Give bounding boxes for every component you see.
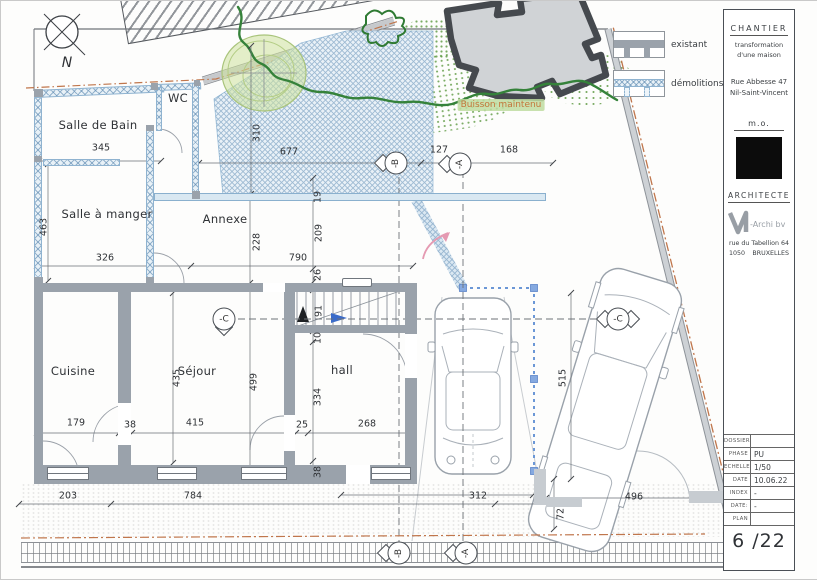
dimension-label: 499 (249, 373, 260, 391)
dimension-label: 10 (313, 332, 324, 344)
legend-label: existant (671, 40, 707, 50)
chantier-heading: CHANTIER (730, 24, 788, 36)
demolition-wall-swatch (613, 70, 665, 97)
wall-post (34, 156, 42, 162)
dimension-label: 38 (313, 466, 324, 478)
demolished-wall-trace (154, 193, 546, 201)
section-marker-c-right: -C (607, 308, 630, 331)
mo-heading: m.o. (734, 119, 784, 131)
dimension-label: 203 (59, 491, 77, 502)
titleblock-fields: DOSSIER PHASEPU ECHELLE1/50 DATE10.06.22… (724, 434, 794, 526)
wall-post (146, 277, 154, 283)
dimension-label: 677 (280, 147, 298, 158)
room-label-salle-de-bain: Salle de Bain (59, 118, 138, 132)
titleblock-field-date2: DATE:- (724, 500, 794, 513)
section-marker-a-top: -A (449, 153, 472, 176)
compass-icon (44, 14, 85, 55)
room-label-cuisine: Cuisine (51, 364, 95, 378)
dimension-label: 38 (124, 420, 136, 431)
exterior-wall (34, 283, 43, 484)
dimension-label: 334 (313, 388, 324, 406)
dimension-label: 435 (172, 369, 183, 387)
dimension-label: 415 (186, 418, 204, 429)
wall-post (192, 191, 200, 199)
legend-item-demolitions: démolitions (613, 70, 723, 97)
existing-wall-swatch (613, 31, 665, 58)
titleblock-field-plan: PLAN (724, 513, 794, 526)
dimension-label: 228 (252, 233, 263, 251)
window (47, 467, 89, 480)
title-block: CHANTIER transformation d'une maison Rue… (723, 9, 795, 571)
titleblock-field-echelle: ECHELLE1/50 (724, 461, 794, 474)
wall-post (194, 80, 200, 86)
titleblock-field-date: DATE10.06.22 (724, 474, 794, 487)
dimension-label: 790 (289, 253, 307, 264)
wall-post (146, 125, 154, 131)
architect-address: rue du Tabellion 64 1050 BRUXELLES (724, 239, 794, 259)
door-opening (405, 334, 417, 378)
room-label-salle-a-manger: Salle à manger (61, 207, 152, 221)
window (241, 467, 287, 480)
door-opening (263, 283, 285, 292)
door-opening (346, 465, 370, 484)
gate-wall (546, 497, 582, 507)
site-address: Rue Abbesse 47 Nil-Saint-Vincent (724, 77, 794, 99)
stair-blue-arrow (331, 313, 347, 323)
section-marker-b-top: -B (385, 152, 408, 175)
north-label: N (62, 55, 72, 71)
car-top-view (428, 298, 518, 474)
dimension-label: 91 (314, 305, 325, 317)
legend: existant démolitions (613, 31, 723, 109)
dimension-label: 463 (39, 218, 50, 236)
titleblock-field-phase: PHASEPU (724, 448, 794, 461)
architecte-heading: ARCHITECTE (728, 191, 790, 203)
wall-post (34, 277, 43, 283)
room-label-sejour: Séjour (178, 364, 216, 378)
dimension-label: 127 (430, 145, 448, 156)
dimension-label: 268 (358, 419, 376, 430)
wall-post (34, 89, 43, 97)
window (157, 467, 197, 480)
dimension-label: 312 (469, 491, 487, 502)
dimension-label: 310 (252, 124, 263, 142)
floor-plan-sheet: Salle de Bain WC Salle à manger Annexe C… (0, 0, 817, 580)
dimension-label: 515 (558, 369, 569, 387)
demolition-wall (156, 87, 162, 131)
client-logo-placeholder (736, 137, 782, 179)
demolition-wall (192, 83, 199, 198)
gate-wall (534, 469, 546, 505)
firm-name-text: -Archi bv (750, 220, 786, 229)
dimension-label: 179 (67, 418, 85, 429)
section-marker-c-left: -C (213, 308, 236, 331)
room-label-wc: WC (168, 91, 188, 105)
demolition-wall (43, 159, 120, 166)
window (371, 467, 411, 480)
dimension-label: 326 (96, 253, 114, 264)
titleblock-field-dossier: DOSSIER (724, 435, 794, 448)
room-label-annexe: Annexe (203, 212, 248, 226)
demolition-wall (34, 97, 42, 283)
car-top-view (517, 262, 693, 558)
dimension-label: 168 (500, 145, 518, 156)
dimension-label: 19 (313, 191, 324, 203)
stair-direction-arrow (297, 306, 309, 322)
sheet-number: 6 /22 (724, 530, 794, 552)
dimension-label: 72 (556, 508, 567, 520)
exterior-wall (405, 283, 417, 484)
dimension-label: 25 (296, 420, 308, 431)
titleblock-field-index: INDEX- (724, 487, 794, 500)
dimension-label: 784 (184, 491, 202, 502)
dimension-label: 209 (314, 224, 325, 242)
stair-landing-beam (342, 278, 372, 287)
legend-label: démolitions (671, 79, 723, 89)
project-description: transformation d'une maison (724, 41, 794, 61)
dimension-label: 496 (625, 492, 643, 503)
wall-post (151, 83, 158, 90)
section-marker-a-bottom: -A (455, 542, 478, 565)
door-opening (284, 415, 295, 451)
dimension-label: 345 (92, 143, 110, 154)
dimension-label: 26 (313, 269, 324, 281)
section-marker-b-bottom: -B (388, 542, 411, 565)
bush-annotation: Buisson maintenu (458, 99, 545, 111)
room-label-hall: hall (331, 363, 353, 377)
architect-logo: -Archi bv (724, 209, 794, 235)
interior-wall (284, 283, 295, 329)
legend-item-existant: existant (613, 31, 723, 58)
